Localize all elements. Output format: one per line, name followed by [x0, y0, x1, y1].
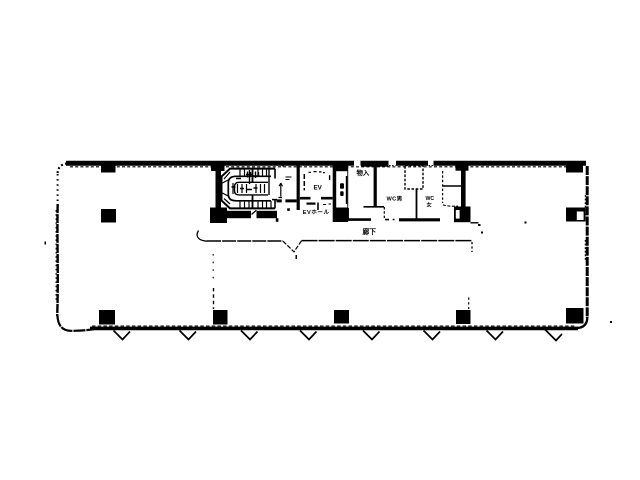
svg-text:WC: WC [426, 196, 435, 202]
svg-text:WC男: WC男 [387, 194, 403, 202]
svg-text:物入: 物入 [357, 168, 370, 177]
svg-text:EV: EV [314, 185, 323, 192]
svg-text:EVホール: EVホール [303, 209, 330, 216]
svg-text:女: 女 [427, 201, 432, 209]
svg-text:廊下: 廊下 [363, 227, 377, 236]
